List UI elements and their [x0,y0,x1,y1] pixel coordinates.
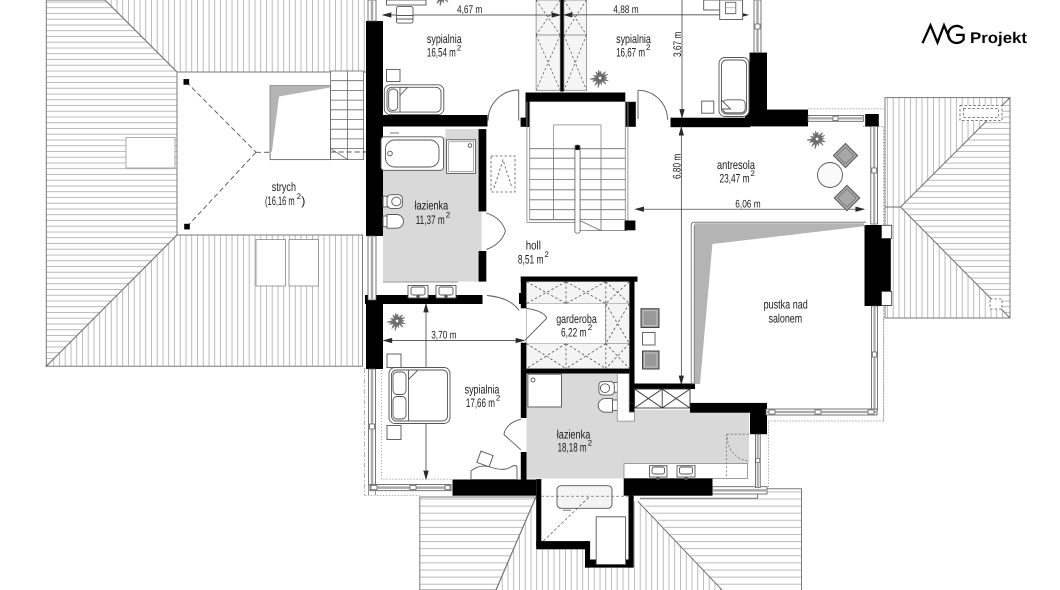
svg-text:3,67 m: 3,67 m [672,32,684,57]
svg-text:2: 2 [496,394,501,403]
svg-text:łazienka: łazienka [415,199,449,213]
svg-text:2: 2 [544,250,549,259]
svg-text:pustka nad: pustka nad [764,298,808,312]
svg-text:antresola: antresola [717,158,755,172]
svg-text:6,80 m: 6,80 m [672,154,684,179]
svg-text:strych: strych [272,180,296,194]
svg-text:17,66 m: 17,66 m [466,396,495,410]
svg-text:Projekt: Projekt [970,30,1027,47]
svg-text:11,37 m: 11,37 m [416,213,445,227]
svg-text:3,70 m: 3,70 m [431,330,456,342]
svg-text:23,47 m: 23,47 m [720,172,750,186]
svg-text:2: 2 [646,43,651,52]
svg-text:holl: holl [526,238,541,252]
svg-text:2: 2 [751,169,756,178]
svg-text:sypialnia: sypialnia [465,382,500,396]
svg-text:18,18 m: 18,18 m [558,441,587,455]
svg-text:6,22 m: 6,22 m [561,325,587,339]
svg-text:8,51 m: 8,51 m [518,252,544,266]
svg-text:2: 2 [588,438,593,447]
svg-text:16,54 m: 16,54 m [427,46,456,60]
svg-text:(16,16 m: (16,16 m [265,194,295,208]
svg-text:2: 2 [457,43,462,52]
svg-text:2: 2 [446,211,451,220]
svg-text:): ) [301,194,305,208]
svg-text:4,67 m: 4,67 m [457,4,482,16]
svg-text:6,06 m: 6,06 m [735,199,760,211]
svg-text:2: 2 [588,323,593,332]
svg-text:łazienka: łazienka [557,427,591,441]
svg-text:salonem: salonem [769,311,803,325]
svg-text:4,88 m: 4,88 m [613,4,638,16]
svg-text:16,67 m: 16,67 m [616,45,645,59]
